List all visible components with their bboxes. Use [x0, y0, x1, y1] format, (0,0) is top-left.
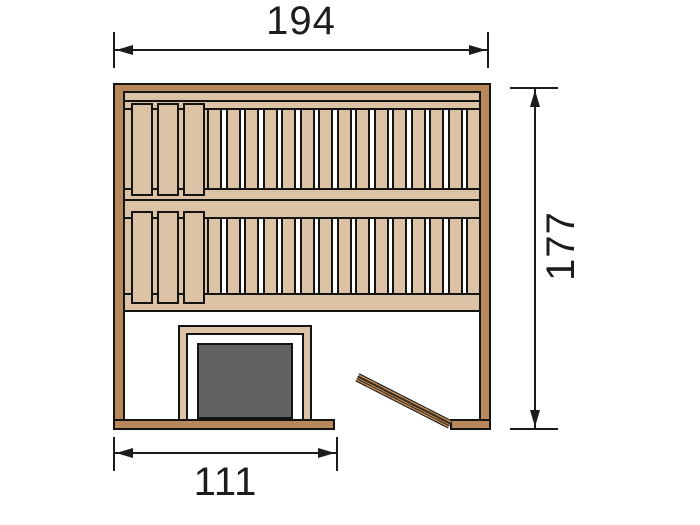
heater-stove — [197, 343, 293, 419]
bench-slat — [355, 219, 370, 293]
door-leaf-open — [355, 373, 452, 428]
wall-front-right — [450, 419, 491, 430]
bench-slat — [318, 219, 333, 293]
bench-slats-upper — [207, 110, 479, 188]
bench-slat — [411, 110, 426, 188]
bench-edge-line — [125, 199, 479, 201]
wall-left — [113, 91, 125, 419]
headrest-slats-upper — [131, 103, 211, 196]
bench-slat — [318, 110, 333, 188]
bench-slat — [300, 219, 315, 293]
dimension-depth-line — [510, 87, 558, 430]
bench-slat — [355, 110, 370, 188]
dimension-tick — [113, 437, 115, 471]
bench-slat — [466, 110, 479, 188]
headrest-slat — [131, 211, 153, 304]
bench-slat — [392, 219, 407, 293]
bench-slat — [392, 110, 407, 188]
dimension-line — [115, 49, 487, 51]
headrest-slat — [157, 103, 179, 196]
bench-slat — [374, 219, 389, 293]
arrow-left-icon — [116, 448, 133, 458]
bench-slat — [281, 219, 296, 293]
dimension-line — [115, 452, 336, 454]
headrest-slat — [183, 103, 205, 196]
arrow-up-icon — [530, 90, 540, 107]
dimension-front-wall-line — [113, 437, 338, 471]
wall-back — [113, 83, 491, 93]
bench-slat — [244, 110, 259, 188]
bench-area — [125, 93, 479, 312]
bench-slat — [448, 219, 463, 293]
bench-slat — [300, 110, 315, 188]
headrest-slat — [131, 103, 153, 196]
arrow-right-icon — [318, 448, 335, 458]
bench-slat — [337, 110, 352, 188]
wall-front-left — [113, 419, 335, 430]
bench-edge-line — [125, 100, 479, 102]
bench-slat — [226, 219, 241, 293]
bench-slat — [429, 219, 444, 293]
bench-slat — [466, 219, 479, 293]
dimension-tick — [336, 437, 338, 471]
bench-slat — [263, 110, 278, 188]
headrest-slat — [183, 211, 205, 304]
bench-slat — [281, 110, 296, 188]
bench-slat — [337, 219, 352, 293]
bench-slat — [226, 110, 241, 188]
bench-slat — [244, 219, 259, 293]
headrest-slats-lower — [131, 211, 211, 304]
bench-slats-lower — [207, 219, 479, 293]
bench-slat — [263, 219, 278, 293]
sauna-floorplan-diagram: 194 177 111 — [0, 0, 700, 525]
bench-slat — [411, 219, 426, 293]
wall-right — [479, 91, 491, 419]
bench-slat — [429, 110, 444, 188]
arrow-down-icon — [530, 410, 540, 427]
dimension-width-line — [113, 32, 489, 68]
arrow-left-icon — [116, 45, 133, 55]
bench-slat — [374, 110, 389, 188]
dimension-tick — [510, 428, 558, 430]
dimension-line — [534, 89, 536, 428]
dimension-tick — [487, 32, 489, 68]
headrest-slat — [157, 211, 179, 304]
arrow-right-icon — [469, 45, 486, 55]
bench-slat — [448, 110, 463, 188]
